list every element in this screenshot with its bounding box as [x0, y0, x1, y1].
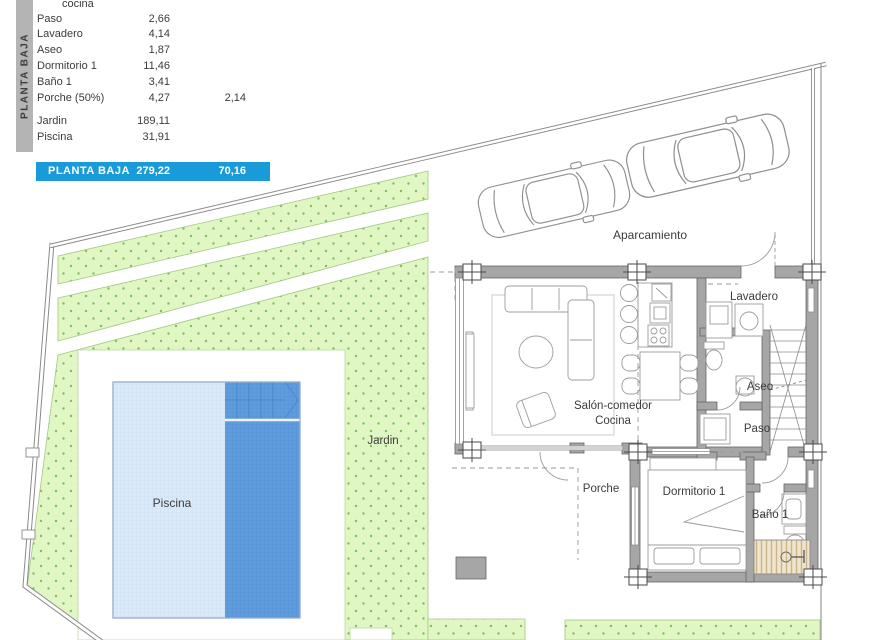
- legend-row: Jardin 189,11: [0, 113, 300, 129]
- car-1: [474, 152, 634, 245]
- legend-row: Dormitorio 1 11,46: [0, 58, 300, 74]
- legend-row-label: Piscina: [37, 129, 72, 145]
- legend-row-value: 3,41: [104, 74, 170, 90]
- deck: [754, 540, 810, 574]
- legend-row-value: 189,11: [104, 113, 170, 129]
- garden-white-pad: [350, 628, 392, 640]
- total-bar-value: 279,22: [106, 162, 170, 181]
- legend-row-label: Paso: [37, 11, 62, 27]
- floor-plan-page: Aparcamiento Lavadero Aseo Paso Salón-co…: [0, 0, 880, 640]
- car-2: [622, 106, 794, 206]
- legend-row: Baño 1 3,41: [0, 74, 300, 90]
- legend-row-value: 31,91: [104, 129, 170, 145]
- area-legend: PLANTA BAJA cocina Paso 2,66 Lavadero 4,…: [0, 0, 300, 200]
- garden-bottom-strip-left: [428, 619, 525, 640]
- kitchen-furniture: [621, 283, 699, 400]
- legend-row-label: Baño 1: [37, 74, 72, 90]
- legend-row: Piscina 31,91: [0, 129, 300, 145]
- garden-bottom-strip-right: [565, 620, 820, 640]
- total-bar-value2: 70,16: [196, 162, 246, 181]
- legend-row-label: Jardin: [37, 113, 67, 129]
- legend-row: Porche (50%) 4,27 2,14: [0, 90, 300, 106]
- planta-baja-total-bar: PLANTA BAJA 279,22 70,16: [36, 162, 270, 181]
- legend-row: Lavadero 4,14: [0, 26, 300, 42]
- legend-row-value: 11,46: [104, 58, 170, 74]
- legend-row: Paso 2,66: [0, 11, 300, 27]
- legend-row-label: Lavadero: [37, 26, 83, 42]
- stairs: [770, 325, 806, 452]
- legend-row-value: 1,87: [104, 42, 170, 58]
- pool-shape: [113, 382, 300, 618]
- salon-furniture: [466, 286, 614, 435]
- legend-row-label: Dormitorio 1: [37, 58, 97, 74]
- legend-row-label: Aseo: [37, 42, 62, 58]
- utility-furniture: [700, 302, 763, 444]
- legend-row-value: 4,14: [104, 26, 170, 42]
- legend-row: Aseo 1,87: [0, 42, 300, 58]
- legend-row-value2: 2,14: [196, 90, 246, 106]
- legend-row-value: 4,27: [104, 90, 170, 106]
- legend-row-value: 2,66: [104, 11, 170, 27]
- legend-row-label: Porche (50%): [37, 90, 104, 106]
